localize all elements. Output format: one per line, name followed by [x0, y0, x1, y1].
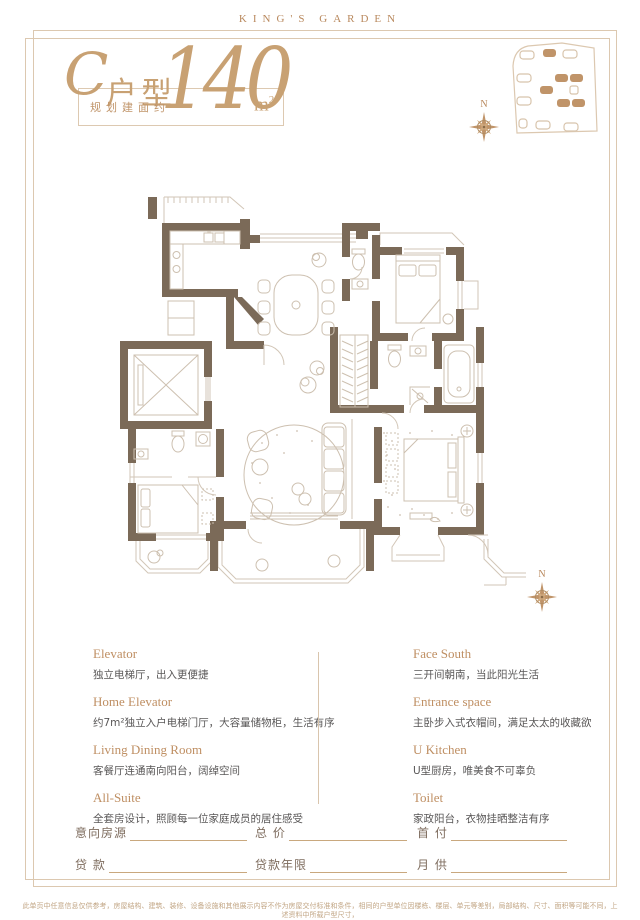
form-field-intent-listing: 意向房源 — [75, 824, 247, 841]
feature-desc: 三开间朝南，当此阳光生活 — [413, 667, 609, 682]
site-buildings-filled — [540, 49, 585, 107]
feature-living-dining: Living Dining Room 客餐厅连通南向阳台，阔绰空间 — [93, 742, 325, 778]
feature-desc: 主卧步入式衣帽间，满足太太的收藏欲 — [413, 715, 609, 730]
form-label: 月 供 — [417, 856, 451, 873]
disclaimer: 此单页中任意信息仅供参考，房屋结构、建筑、装修、设备设施和其他展示内容不作为房屋… — [20, 902, 620, 920]
feature-title: Home Elevator — [93, 694, 325, 710]
form-blank-line — [451, 857, 567, 873]
feature-title: Elevator — [93, 646, 325, 662]
plan-furniture — [134, 231, 474, 571]
brand-title: KING'S GARDEN — [0, 13, 640, 25]
feature-column-divider — [318, 652, 319, 804]
form-blank-line — [130, 825, 247, 841]
form-blank-line — [451, 825, 567, 841]
feature-home-elevator: Home Elevator 约7m²独立入户电梯门厅，大容量储物柜，生活有序 — [93, 694, 325, 730]
form-blank-line — [310, 857, 407, 873]
feature-desc: 约7m²独立入户电梯门厅，大容量储物柜，生活有序 — [93, 715, 325, 730]
feature-face-south: Face South 三开间朝南，当此阳光生活 — [413, 646, 609, 682]
feature-u-kitchen: U Kitchen U型厨房，唯美食不可辜负 — [413, 742, 609, 778]
floor-plan-drawing — [112, 183, 532, 633]
feature-desc: 客餐厅连通南向阳台，阔绰空间 — [93, 763, 325, 778]
site-plan-map — [504, 40, 604, 138]
form-field-down-payment: 首 付 — [417, 824, 567, 841]
feature-title: Face South — [413, 646, 609, 662]
area-unit-m: m — [254, 94, 269, 115]
feature-desc: U型厨房，唯美食不可辜负 — [413, 763, 609, 778]
compass-rose-icon: N — [462, 96, 506, 146]
plan-windows — [130, 197, 526, 585]
feature-toilet: Toilet 家政阳台，衣物挂晒整洁有序 — [413, 790, 609, 826]
form-field-monthly-payment: 月 供 — [417, 856, 567, 873]
form-blank-line — [109, 857, 247, 873]
form-row-1: 意向房源 总 价 首 付 — [75, 824, 567, 841]
feature-title: U Kitchen — [413, 742, 609, 758]
form-label: 总 价 — [255, 824, 289, 841]
form-row-2: 贷 款 贷款年限 月 供 — [75, 856, 567, 873]
form-label: 贷 款 — [75, 856, 109, 873]
feature-elevator: Elevator 独立电梯厅，出入更便捷 — [93, 646, 325, 682]
feature-desc: 独立电梯厅，出入更便捷 — [93, 667, 325, 682]
form-field-loan: 贷 款 — [75, 856, 247, 873]
disclaimer-line-1: 此单页中任意信息仅供参考，房屋结构、建筑、装修、设备设施和其他展示内容不作为房屋… — [20, 902, 620, 920]
feature-title: Living Dining Room — [93, 742, 325, 758]
area-note: 规划建面约 — [90, 99, 170, 115]
feature-title: Toilet — [413, 790, 609, 806]
form-label: 首 付 — [417, 824, 451, 841]
compass-rose-icon-bottom: N — [520, 566, 564, 616]
feature-all-suite: All-Suite 全套房设计，照顾每一位家庭成员的居住感受 — [93, 790, 325, 826]
compass-north-label: N — [480, 99, 487, 110]
feature-title: Entrance space — [413, 694, 609, 710]
form-label: 意向房源 — [75, 824, 130, 841]
form-field-total-price: 总 价 — [255, 824, 407, 841]
feature-list-left: Elevator 独立电梯厅，出入更便捷 Home Elevator 约7m²独… — [93, 646, 325, 838]
area-unit: m2 — [254, 94, 274, 116]
brochure-page: KING'S GARDEN C 户型 140 m2 规划建面约 — [0, 0, 640, 920]
form-label: 贷款年限 — [255, 856, 310, 873]
feature-title: All-Suite — [93, 790, 325, 806]
area-unit-sup: 2 — [269, 94, 275, 106]
feature-list-right: Face South 三开间朝南，当此阳光生活 Entrance space 主… — [413, 646, 609, 838]
form-blank-line — [289, 825, 407, 841]
unit-letter: C — [64, 40, 108, 108]
feature-entrance-space: Entrance space 主卧步入式衣帽间，满足太太的收藏欲 — [413, 694, 609, 730]
form-field-loan-term: 贷款年限 — [255, 856, 407, 873]
compass-north-label-bottom: N — [538, 569, 545, 580]
